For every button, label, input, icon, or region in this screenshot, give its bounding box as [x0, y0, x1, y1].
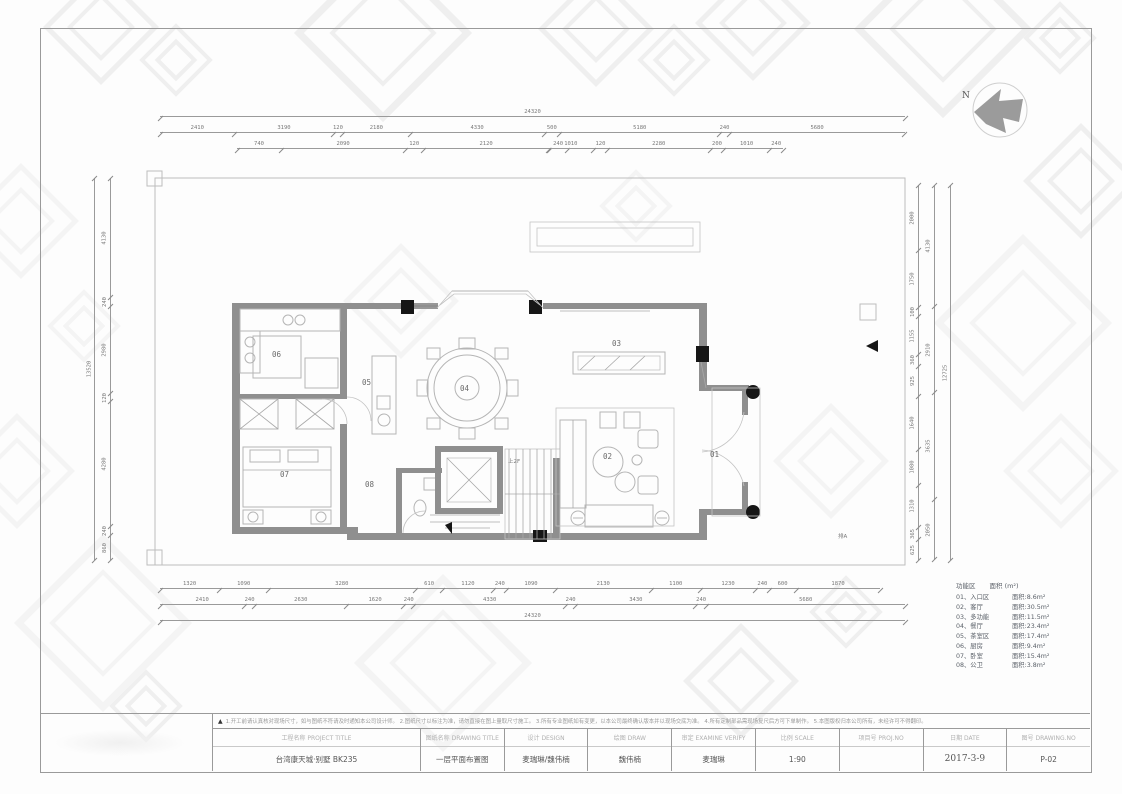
legend-row: 07、卧室 面积:15.4m² [956, 652, 1049, 662]
legend-room-area: 面积:3.8m² [1012, 661, 1045, 671]
north-arrow-icon: N [962, 83, 1027, 137]
title-block-label: 图纸名称 DRAWING TITLE [421, 729, 504, 747]
dim-right-row2: 4130291036352050 [924, 185, 935, 560]
dim-segment: 200 [710, 138, 724, 149]
drawing-sheet-page: 01 02 03 04 05 06 07 08 上2F 排A N 24320 2… [0, 0, 1122, 794]
dim-segment: 2410 [160, 122, 235, 133]
legend-row: 06、厨房 面积:9.4m² [956, 642, 1049, 652]
stair-direction-note: 上2F [508, 457, 520, 465]
dim-segment: 240 [100, 526, 111, 535]
dim-segment: 5680 [729, 122, 905, 133]
door-marker-icon [866, 340, 878, 352]
title-block-columns: 工程名称 PROJECT TITLE 台湾康天城·别墅 BK235 图纸名称 D… [213, 729, 1090, 771]
title-block-value: 1:90 [756, 747, 839, 771]
dim-segment: 1120 [443, 578, 493, 589]
title-block-column: 审定 EXAMINE VERIFY 麦瑞琳 [672, 729, 756, 771]
dim-segment: 1320 [160, 578, 219, 589]
bed [243, 447, 331, 524]
dim-segment: 3190 [235, 122, 334, 133]
pool [530, 222, 700, 252]
dim-segment: 1080 [908, 450, 919, 485]
dim-segment: 2180 [343, 122, 410, 133]
title-block-column: 工程名称 PROJECT TITLE 台湾康天城·别墅 BK235 [213, 729, 421, 771]
dim-bottom-row1: 1320109032806101120240109021301100123024… [160, 578, 880, 589]
legend-room-area: 面积:15.4m² [1012, 652, 1049, 662]
title-block: ▲ 1.开工前请认真核对现场尺寸，如与图纸不符请及时通知本公司设计师。 2.图纸… [40, 713, 1090, 771]
notes-text: 1.开工前请认真核对现场尺寸，如与图纸不符请及时通知本公司设计师。 2.图纸尺寸… [226, 717, 927, 725]
legend-room-name: 03、多功能 [956, 613, 1004, 623]
bar-island [372, 356, 396, 434]
room-number: 02 [603, 452, 612, 461]
legend-room-area: 面积:9.4m² [1012, 642, 1045, 652]
legend-rows: 01、入口区 面积:8.6m² 02、客厅 面积:30.5m² 03、多功能 面… [956, 593, 1049, 671]
title-block-label: 比例 SCALE [756, 729, 839, 747]
dim-segment: 4130 [100, 178, 111, 298]
dim-segment: 2630 [255, 594, 347, 605]
title-block-value: 麦瑞琳/魏伟楠 [505, 747, 588, 771]
legend-row: 01、入口区 面积:8.6m² [956, 593, 1049, 603]
dim-segment: 1620 [347, 594, 404, 605]
dim-segment: 2000 [908, 185, 919, 250]
legend-row: 02、客厅 面积:30.5m² [956, 603, 1049, 613]
title-block-label: 工程名称 PROJECT TITLE [213, 729, 420, 747]
dim-segment: 120 [405, 138, 423, 149]
dim-segment: 5180 [560, 122, 720, 133]
dim-segment: 3280 [268, 578, 415, 589]
dim-segment: 925 [908, 366, 919, 396]
legend-room-name: 01、入口区 [956, 593, 1004, 603]
dim-segment: 240 [493, 578, 506, 589]
room-number: 07 [280, 470, 289, 479]
legend-room-name: 05、茶室区 [956, 632, 1004, 642]
dim-segment: 240 [720, 122, 729, 133]
title-block-column: 设计 DESIGN 麦瑞琳/魏伟楠 [505, 729, 589, 771]
dim-segment: 240 [565, 594, 576, 605]
dim-segment: 3635 [924, 392, 935, 499]
drain-note: 排A [838, 532, 848, 540]
title-block-label: 日期 DATE [924, 729, 1007, 747]
living-room-furniture [556, 352, 674, 527]
room-number: 05 [362, 378, 371, 387]
title-block-column: 绘图 DRAW 魏伟楠 [588, 729, 672, 771]
legend-room-name: 02、客厅 [956, 603, 1004, 613]
dim-top-sub-right: 101012022802001010240 [548, 138, 783, 149]
title-block-column: 项目号 PROJ.NO [840, 729, 924, 771]
general-notes: ▲ 1.开工前请认真核对现场尺寸，如与图纸不符请及时通知本公司设计师。 2.图纸… [213, 714, 1090, 729]
elevator [438, 449, 500, 511]
title-block-column: 图号 DRAWING.NO P-02 [1007, 729, 1090, 771]
dim-segment: 360 [908, 355, 919, 367]
dim-segment: 240 [403, 594, 414, 605]
dim-right-overall: 12725 [940, 185, 951, 560]
dim-segment: 5680 [706, 594, 905, 605]
area-legend: 功能区 面积 (m²) 01、入口区 面积:8.6m² 02、客厅 面积:30.… [956, 580, 1049, 671]
legend-row: 03、多功能 面积:11.5m² [956, 613, 1049, 623]
room-number: 08 [365, 480, 375, 489]
title-block-label: 设计 DESIGN [505, 729, 588, 747]
dim-segment: 740 [237, 138, 281, 149]
dim-segment: 4330 [410, 122, 544, 133]
dim-segment: 625 [908, 540, 919, 560]
dim-bottom-row2: 241024026301620240433024034302405680 [160, 594, 905, 605]
dim-segment: 240 [244, 594, 255, 605]
legend-room-name: 06、厨房 [956, 642, 1004, 652]
dim-segment: 4130 [924, 185, 935, 307]
dim-segment: 610 [415, 578, 442, 589]
dim-top-sub-left: 74020901202120240 [237, 138, 567, 149]
legend-room-area: 面积:23.4m² [1012, 622, 1049, 632]
dim-segment: 2120 [423, 138, 549, 149]
dim-segment: 2130 [555, 578, 651, 589]
dim-segment: 1750 [908, 250, 919, 307]
dim-segment: 365 [908, 528, 919, 540]
dim-segment: 2090 [281, 138, 405, 149]
title-block-main: ▲ 1.开工前请认真核对现场尺寸，如与图纸不符请及时通知本公司设计师。 2.图纸… [213, 714, 1090, 771]
title-block-column: 日期 DATE 2017-3-9 [924, 729, 1008, 771]
room-number: 04 [460, 384, 470, 393]
title-block-value: 台湾康天城·别墅 BK235 [213, 747, 420, 771]
dim-segment: 1155 [908, 317, 919, 355]
dim-bottom-overall: 24320 [160, 610, 905, 621]
dim-segment: 1230 [700, 578, 755, 589]
dim-segment: 2980 [100, 307, 111, 394]
title-block-value: P-02 [1007, 747, 1090, 771]
dim-left-row: 413024029801204280240860 [100, 178, 111, 560]
kitchen-counter [240, 309, 340, 388]
dim-segment: 240 [756, 578, 769, 589]
dim-left-overall: 13520 [84, 178, 95, 560]
dim-segment: 1010 [724, 138, 770, 149]
dim-segment: 3430 [576, 594, 696, 605]
title-block-value [840, 747, 923, 771]
legend-area-header: 面积 (m²) [990, 580, 1019, 590]
legend-room-area: 面积:11.5m² [1012, 613, 1049, 623]
title-block-label: 审定 EXAMINE VERIFY [672, 729, 755, 747]
dim-segment: 120 [594, 138, 608, 149]
walls [232, 303, 749, 540]
room-number: 06 [272, 350, 282, 359]
dim-segment: 2410 [160, 594, 244, 605]
legend-header: 功能区 面积 (m²) [956, 580, 1049, 590]
legend-room-name: 04、餐厅 [956, 622, 1004, 632]
dim-segment: 1090 [219, 578, 268, 589]
room-number: 01 [710, 450, 719, 459]
legend-zone-header: 功能区 [956, 580, 976, 590]
dim-segment: 240 [769, 138, 783, 149]
dim-top-row: 241031901202180433050051802405680 [160, 122, 905, 133]
dim-segment: 1090 [507, 578, 556, 589]
site-boundary [147, 171, 905, 565]
dim-segment: 120 [333, 122, 342, 133]
staircase [430, 449, 560, 539]
dim-segment: 1640 [908, 396, 919, 449]
dim-segment: 1870 [796, 578, 880, 589]
title-block-value: 2017-3-9 [924, 747, 1007, 771]
title-block-value: 麦瑞琳 [672, 747, 755, 771]
legend-room-area: 面积:30.5m² [1012, 603, 1049, 613]
title-block-column: 图纸名称 DRAWING TITLE 一层平面布置图 [421, 729, 505, 771]
title-block-label: 绘图 DRAW [588, 729, 671, 747]
dim-segment: 12725 [940, 185, 951, 560]
dim-top-overall: 24320 [160, 106, 905, 117]
dim-segment: 24320 [160, 610, 905, 621]
dim-segment: 4280 [100, 402, 111, 526]
entry-column-icon [746, 505, 760, 519]
dim-segment: 240 [696, 594, 707, 605]
title-block-label: 图号 DRAWING.NO [1007, 729, 1090, 747]
dim-right-row: 200017501001155360925164010801310365625 [908, 185, 919, 560]
dim-segment: 1310 [908, 485, 919, 528]
entry-column-icon [746, 385, 760, 399]
warning-triangle-icon: ▲ [218, 718, 223, 725]
legend-room-area: 面积:17.4m² [1012, 632, 1049, 642]
legend-room-name: 08、公卫 [956, 661, 1004, 671]
dim-segment: 1100 [651, 578, 700, 589]
dim-segment: 2910 [924, 307, 935, 393]
title-block-column: 比例 SCALE 1:90 [756, 729, 840, 771]
dim-segment: 2280 [607, 138, 710, 149]
dim-segment: 2050 [924, 500, 935, 560]
interior-doors [322, 397, 371, 424]
dim-segment: 500 [544, 122, 559, 133]
company-logo [40, 714, 213, 771]
legend-row: 04、餐厅 面积:23.4m² [956, 622, 1049, 632]
dim-segment: 600 [769, 578, 796, 589]
legend-row: 08、公卫 面积:3.8m² [956, 661, 1049, 671]
legend-room-area: 面积:8.6m² [1012, 593, 1045, 603]
legend-room-name: 07、卧室 [956, 652, 1004, 662]
title-block-value: 魏伟楠 [588, 747, 671, 771]
room-number: 03 [612, 339, 621, 348]
dim-segment: 24320 [160, 106, 905, 117]
legend-row: 05、茶室区 面积:17.4m² [956, 632, 1049, 642]
dim-segment: 13520 [84, 178, 95, 560]
title-block-value: 一层平面布置图 [421, 747, 504, 771]
title-block-label: 项目号 PROJ.NO [840, 729, 923, 747]
dim-segment: 1010 [548, 138, 594, 149]
dim-segment: 4330 [414, 594, 565, 605]
dim-segment: 860 [100, 535, 111, 560]
bathroom-fixtures [403, 478, 439, 533]
north-label: N [962, 91, 970, 101]
closets [240, 399, 334, 429]
